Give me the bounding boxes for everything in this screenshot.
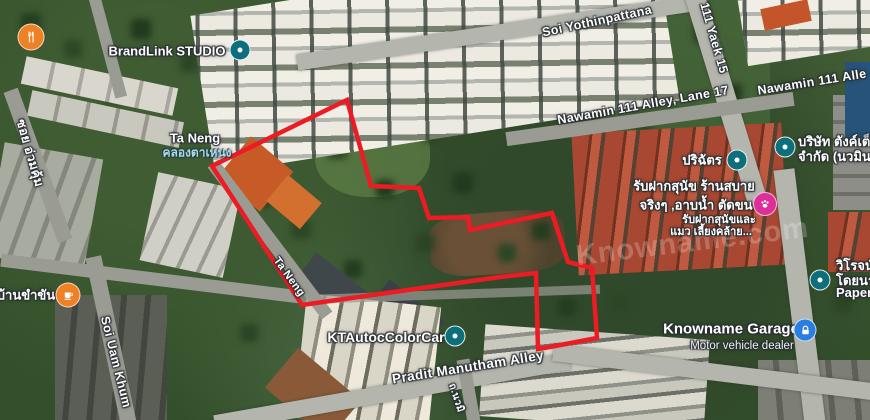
paw-icon — [759, 198, 771, 210]
company-pin[interactable] — [775, 137, 796, 158]
cafe-pin[interactable] — [56, 283, 81, 308]
parichat-pin[interactable] — [727, 150, 748, 171]
coffee-cup-icon — [62, 289, 74, 301]
wirot-pin[interactable] — [810, 270, 831, 291]
poi-label-brandlink[interactable]: BrandLink STUDIO — [108, 44, 225, 59]
poi-label-company-line2[interactable]: จำกัด (นวมิน — [798, 146, 870, 167]
satellite-map[interactable]: Knowname.com Ta Neng คลองตาเหนง Soi Yoth… — [0, 0, 870, 420]
restaurant-pin[interactable] — [18, 24, 45, 51]
dirt-patch — [428, 207, 567, 278]
poi-label-ktautoccolorcar[interactable]: KTAutocColorCar — [327, 329, 444, 345]
lock-icon — [799, 324, 811, 336]
poi-label-petshop-line4: แมว เลี้ยงคล้าย... — [670, 222, 752, 240]
ktautoccolorcar-pin[interactable] — [445, 326, 466, 347]
garage-pin[interactable] — [794, 319, 817, 342]
poi-label-wirot-line3: Paper — [836, 285, 870, 300]
poi-label-cafe[interactable]: บ้านขำขัน — [0, 285, 55, 306]
trees — [0, 0, 2, 2]
brandlink-pin[interactable] — [230, 40, 251, 61]
canal-label-khlong-ta-neng: คลองตาเหนง — [162, 144, 231, 163]
restaurant-icon — [25, 31, 38, 44]
poi-label-knowname-garage[interactable]: Knowname Garage — [663, 321, 799, 338]
poi-sublabel-garage: Motor vehicle dealer — [690, 340, 794, 352]
poi-label-petshop-line1[interactable]: รับฝากสุนัข ร้านสบาย — [633, 176, 755, 197]
petshop-pin[interactable] — [753, 192, 777, 216]
poi-label-parichat[interactable]: ปริฉัตร — [682, 150, 722, 171]
